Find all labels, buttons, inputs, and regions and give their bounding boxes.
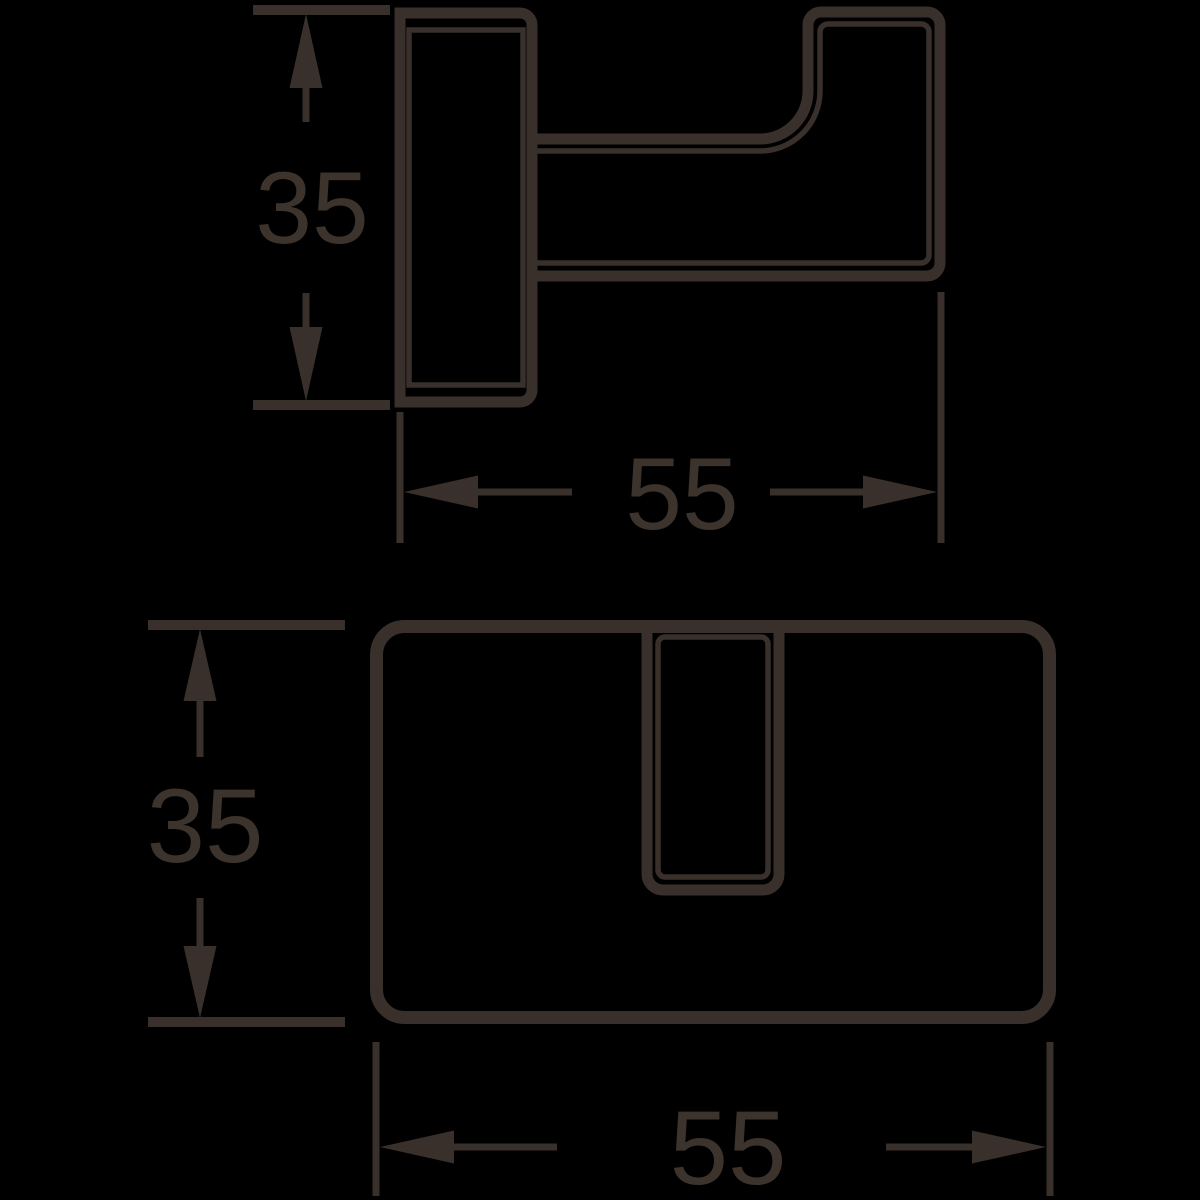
arrow-down-icon [184, 946, 217, 1018]
front-view-width-dimension: 55 [376, 1042, 1050, 1200]
dim-label-side-depth: 55 [625, 437, 738, 551]
arrow-up-icon [290, 14, 323, 88]
dim-label-front-width: 55 [670, 1090, 787, 1200]
hook-arm-outline [532, 12, 940, 276]
arrow-down-icon [290, 327, 323, 401]
hook-body-outline [377, 627, 1050, 1018]
front-view [377, 621, 1050, 1018]
technical-drawing: 35 55 35 [0, 0, 1200, 1200]
side-view-depth-dimension: 55 [400, 292, 941, 551]
dim-label-side-height: 35 [255, 151, 368, 265]
front-view-height-dimension: 35 [147, 625, 345, 1022]
wall-plate-inner-line [409, 30, 523, 385]
wall-plate-outline [400, 13, 532, 402]
side-view-height-dimension: 35 [253, 10, 390, 405]
arrow-right-icon [972, 1131, 1046, 1164]
hook-slot-inner-line [658, 637, 768, 877]
arrow-right-icon [863, 476, 937, 509]
side-profile-view [400, 12, 940, 402]
hook-slot-outline [647, 621, 779, 890]
arrow-left-icon [404, 476, 478, 509]
arrow-up-icon [184, 629, 217, 701]
dim-label-front-height: 35 [147, 768, 264, 885]
arrow-left-icon [380, 1131, 454, 1164]
drawing-canvas: 35 55 35 [0, 0, 1200, 1200]
